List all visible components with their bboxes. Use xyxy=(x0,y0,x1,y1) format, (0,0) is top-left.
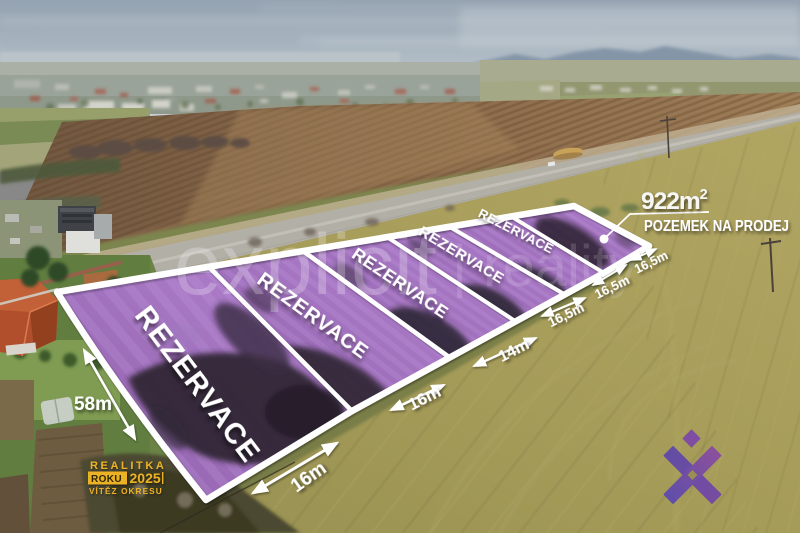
svg-text:ROKU: ROKU xyxy=(91,474,122,485)
svg-text:2025: 2025 xyxy=(130,470,161,486)
svg-text:POZEMEK NA PRODEJ: POZEMEK NA PRODEJ xyxy=(644,218,789,235)
svg-text:VÍTĚZ OKRESU: VÍTĚZ OKRESU xyxy=(89,485,163,496)
svg-text:58m: 58m xyxy=(74,394,112,415)
svg-text:922m2: 922m2 xyxy=(641,187,708,215)
